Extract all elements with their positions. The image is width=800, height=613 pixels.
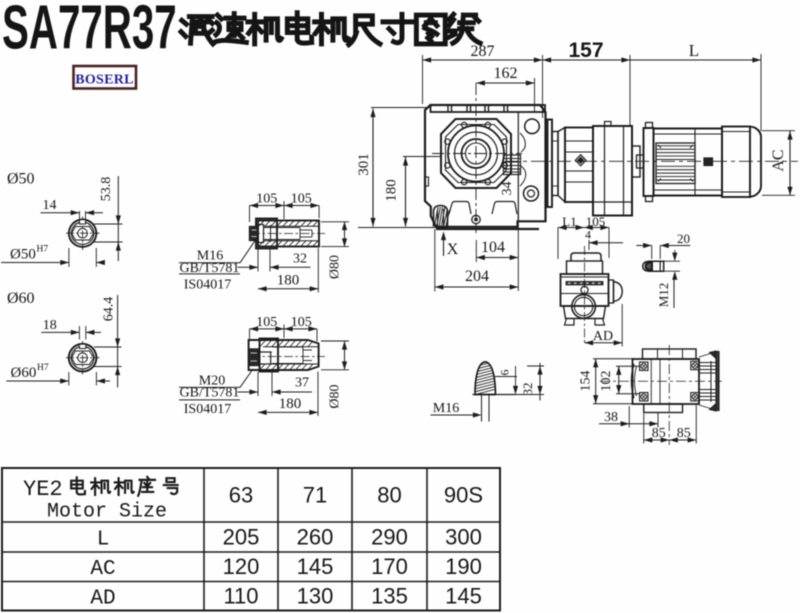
svg-text:M12: M12: [656, 283, 671, 308]
svg-text:135: 135: [371, 584, 408, 609]
svg-text:300: 300: [445, 525, 482, 550]
svg-text:20: 20: [677, 231, 690, 246]
svg-text:Ø60: Ø60: [11, 365, 37, 381]
svg-text:AC: AC: [770, 149, 787, 171]
svg-text:63: 63: [229, 483, 253, 508]
svg-text:190: 190: [445, 554, 482, 579]
svg-text:IS04017: IS04017: [184, 402, 231, 417]
svg-text:34: 34: [500, 182, 515, 196]
svg-text:Ø50: Ø50: [7, 171, 35, 188]
svg-text:YE2: YE2: [23, 477, 63, 502]
svg-text:M16: M16: [433, 401, 459, 416]
svg-text:AD: AD: [593, 329, 613, 344]
svg-text:260: 260: [297, 525, 334, 550]
svg-text:290: 290: [371, 525, 408, 550]
svg-text:GB/T5781: GB/T5781: [180, 385, 240, 400]
svg-text:170: 170: [371, 554, 408, 579]
svg-text:BOSERL: BOSERL: [75, 73, 134, 88]
svg-text:287: 287: [471, 43, 495, 60]
svg-text:SA77R37: SA77R37: [2, 0, 177, 63]
svg-text:180: 180: [279, 396, 302, 412]
svg-text:38: 38: [604, 410, 618, 425]
svg-text:110: 110: [223, 584, 258, 609]
svg-text:IS04017: IS04017: [184, 278, 231, 293]
svg-text:18: 18: [43, 318, 57, 333]
svg-text:Ø60: Ø60: [7, 290, 35, 307]
svg-text:71: 71: [303, 483, 327, 508]
svg-text:180: 180: [384, 179, 400, 202]
svg-text:AD: AD: [90, 588, 115, 611]
svg-text:204: 204: [465, 268, 489, 285]
svg-text:162: 162: [494, 65, 518, 82]
svg-text:105: 105: [256, 315, 277, 330]
svg-text:6: 6: [498, 370, 512, 376]
svg-text:205: 205: [223, 525, 260, 550]
svg-text:14: 14: [43, 198, 57, 213]
svg-text:H7: H7: [37, 363, 49, 373]
svg-text:L: L: [97, 529, 110, 552]
svg-text:32: 32: [293, 252, 307, 267]
svg-text:105: 105: [291, 192, 312, 207]
svg-text:102: 102: [599, 371, 614, 392]
svg-text:Ø50: Ø50: [10, 247, 36, 263]
svg-text:H7: H7: [37, 245, 49, 255]
svg-text:53.8: 53.8: [99, 177, 114, 202]
svg-text:157: 157: [568, 39, 603, 62]
svg-text:90S: 90S: [444, 483, 483, 508]
svg-text:32: 32: [520, 383, 535, 396]
svg-text:4: 4: [585, 228, 591, 242]
svg-text:104: 104: [481, 239, 505, 256]
svg-text:154: 154: [579, 371, 594, 392]
svg-text:120: 120: [223, 554, 260, 579]
svg-text:80: 80: [377, 483, 401, 508]
svg-text:X: X: [447, 241, 459, 258]
svg-text:145: 145: [297, 554, 334, 579]
svg-text:64.4: 64.4: [102, 297, 117, 322]
svg-text:180: 180: [277, 273, 300, 289]
svg-text:AC: AC: [90, 558, 115, 581]
svg-text:301: 301: [356, 153, 372, 176]
svg-text:105: 105: [256, 192, 277, 207]
svg-text:Motor Size: Motor Size: [47, 501, 167, 524]
svg-text:L: L: [689, 41, 699, 60]
svg-text:Ø80: Ø80: [328, 255, 343, 279]
svg-text:37: 37: [295, 376, 309, 391]
svg-text:130: 130: [297, 584, 334, 609]
svg-text:Ø80: Ø80: [328, 384, 343, 408]
svg-text:145: 145: [445, 584, 482, 609]
